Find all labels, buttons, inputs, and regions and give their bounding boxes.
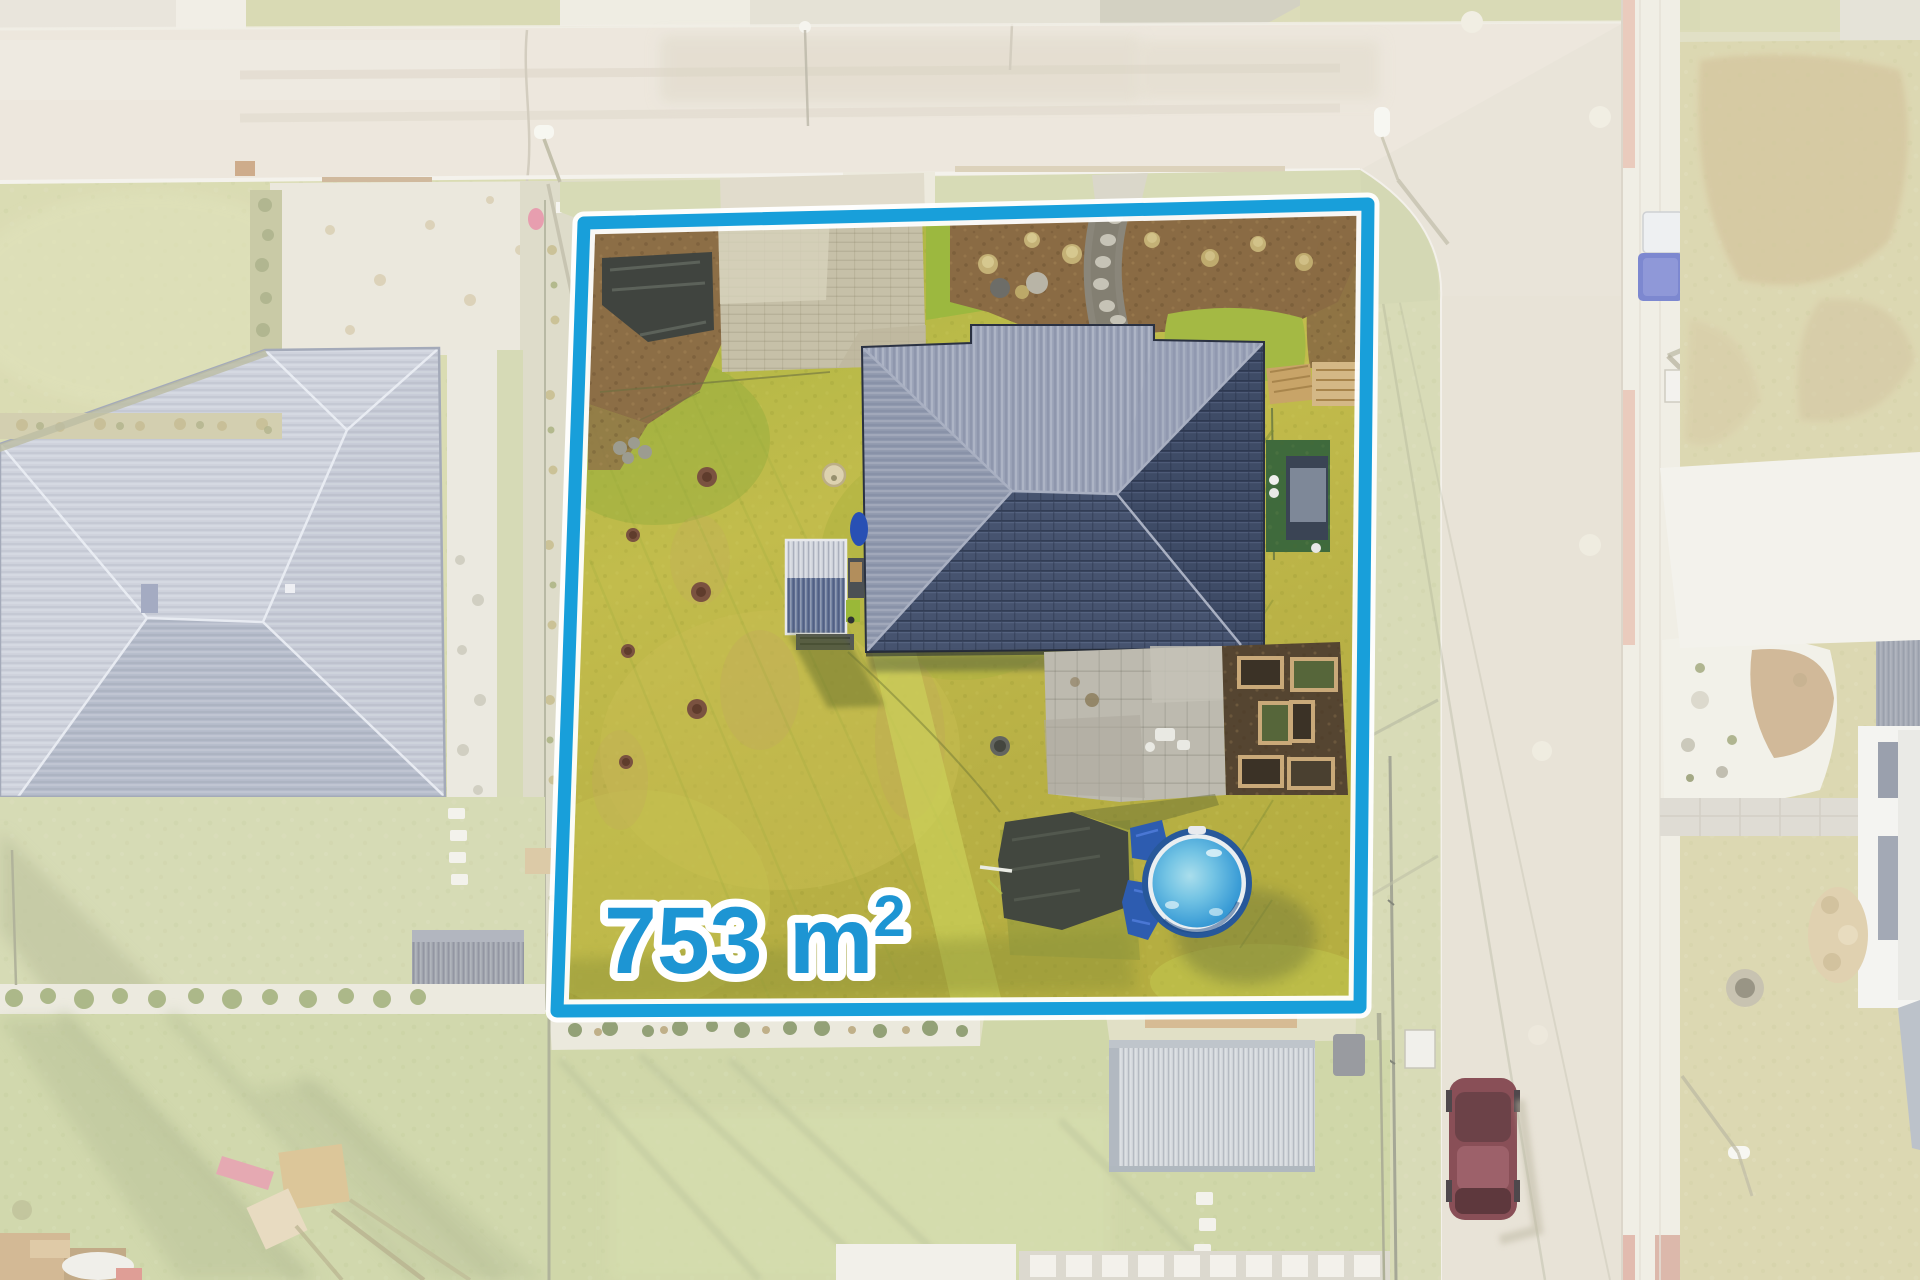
svg-text:753 m2: 753 m2 (604, 884, 906, 994)
